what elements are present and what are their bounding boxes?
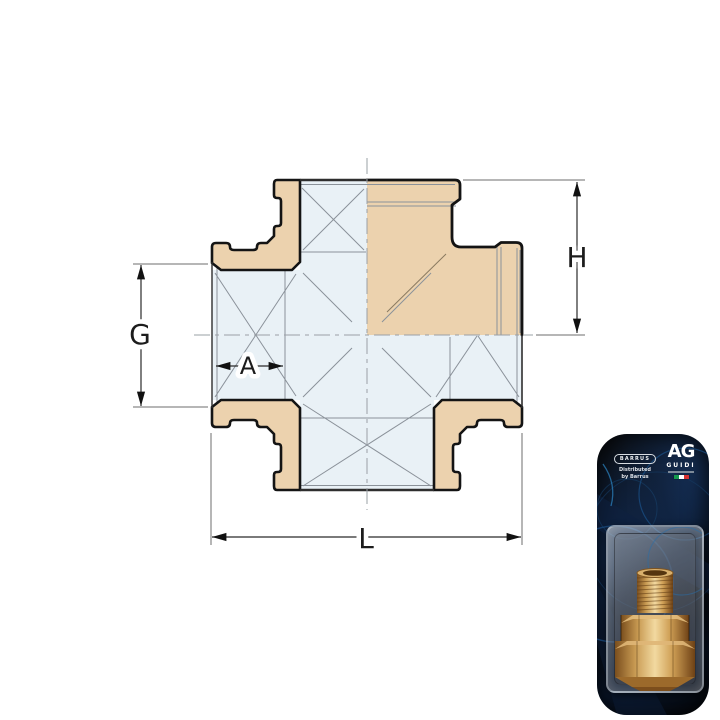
distributed-by-text: Distributed by Barrus bbox=[610, 467, 660, 480]
italian-flag-icon bbox=[674, 475, 689, 479]
label-G: G bbox=[129, 318, 151, 351]
fitting-thread-stub bbox=[637, 569, 673, 614]
guidi-wordmark: GUIDI bbox=[661, 462, 701, 469]
distributor-badge: BARRUS Distributed by Barrus bbox=[610, 445, 660, 480]
barrus-logo: BARRUS bbox=[614, 454, 656, 464]
brand-logo-block: AG GUIDI bbox=[661, 443, 701, 479]
fitting-hex-body bbox=[615, 641, 695, 691]
product-packaging-card: BARRUS Distributed by Barrus AG GUIDI bbox=[597, 434, 709, 715]
fitting-hex-collar bbox=[621, 615, 689, 643]
blister-pack bbox=[606, 525, 704, 693]
fitting-exterior-quadrant bbox=[367, 180, 522, 335]
label-H: H bbox=[566, 241, 587, 274]
ag-logo: AG bbox=[661, 443, 701, 461]
brass-fitting-photo bbox=[608, 527, 702, 691]
label-A: A bbox=[240, 352, 257, 380]
guidi-tagline-bar bbox=[668, 471, 694, 473]
label-L: L bbox=[358, 522, 374, 555]
